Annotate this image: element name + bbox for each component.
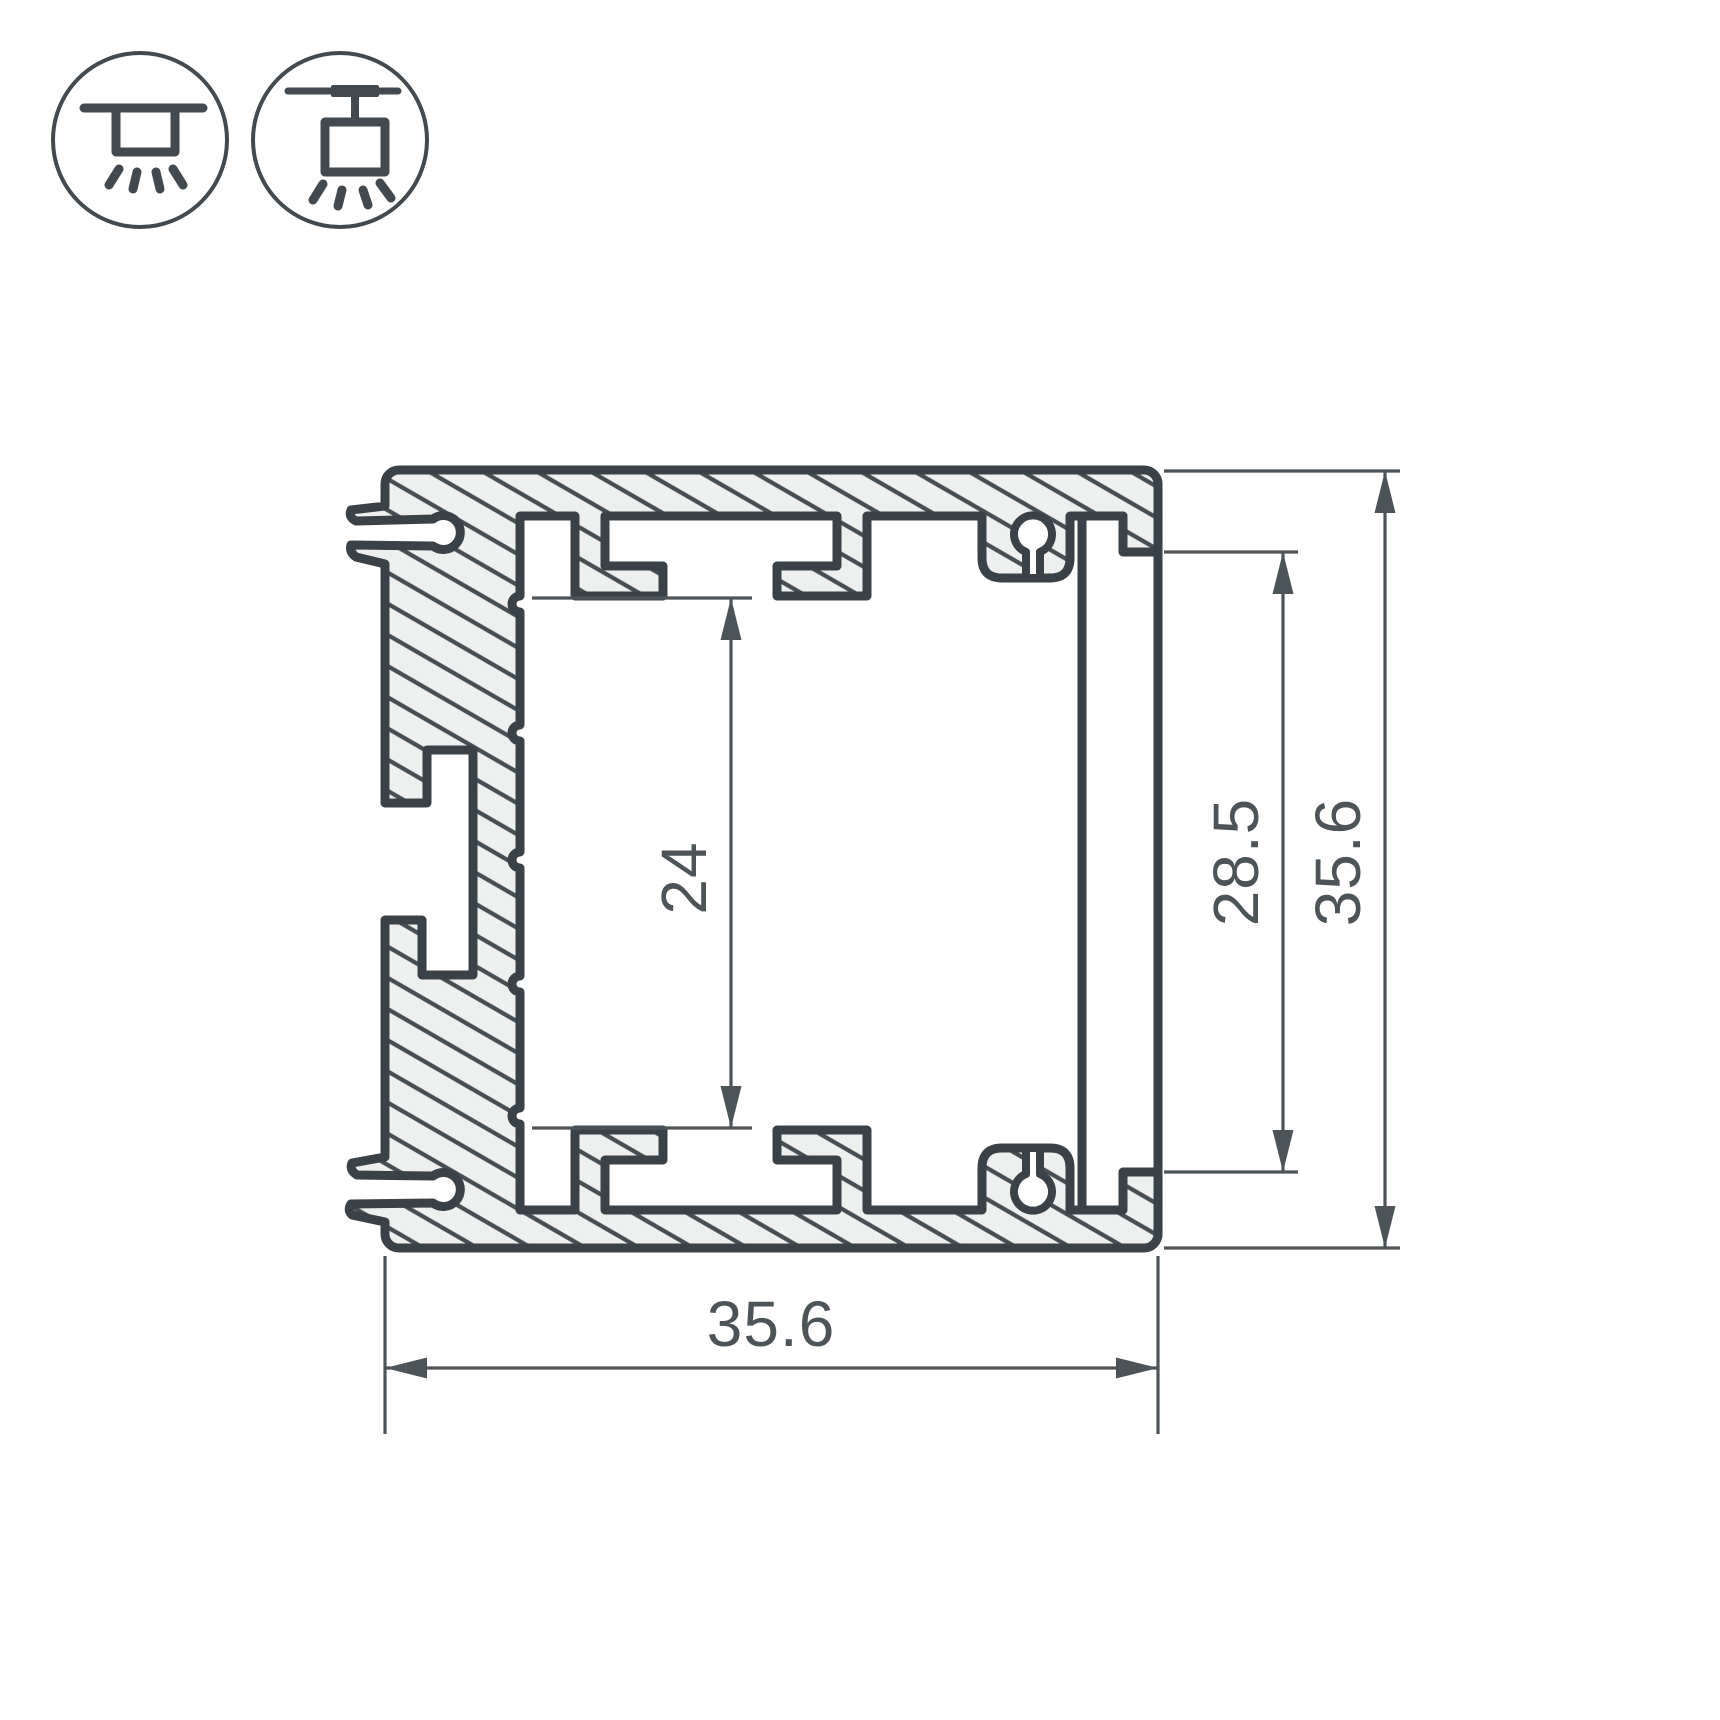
suspended-mount-icon xyxy=(253,53,427,227)
arrowhead-right xyxy=(1116,1358,1158,1379)
profile-body-section xyxy=(349,470,1158,1248)
arrowhead-up xyxy=(1273,552,1294,594)
arrowhead-down xyxy=(1273,1130,1294,1172)
light-rays xyxy=(313,183,391,206)
light-rays xyxy=(109,169,183,189)
dimension-label-inner-height: 24 xyxy=(648,841,720,914)
arrowhead-left xyxy=(385,1358,427,1379)
surface-mount-icon xyxy=(53,53,227,227)
technical-drawing: 24 28.5 35.6 35.6 xyxy=(0,0,1720,1720)
arrowhead-down xyxy=(1375,1206,1396,1248)
dimension-label-overall-width: 35.6 xyxy=(707,1288,836,1360)
cover-plate xyxy=(1082,516,1158,1210)
profile-box xyxy=(325,122,385,172)
arrowhead-up xyxy=(721,598,742,640)
arrowhead-up xyxy=(1375,471,1396,513)
icon-circle xyxy=(53,53,227,227)
dimension-label-overall-height: 35.6 xyxy=(1302,798,1374,927)
arrowhead-down xyxy=(721,1086,742,1128)
profile-box xyxy=(116,108,175,152)
profile-drawing-canvas: 24 28.5 35.6 35.6 xyxy=(0,0,1720,1720)
dimension-label-cover-height: 28.5 xyxy=(1200,798,1272,927)
